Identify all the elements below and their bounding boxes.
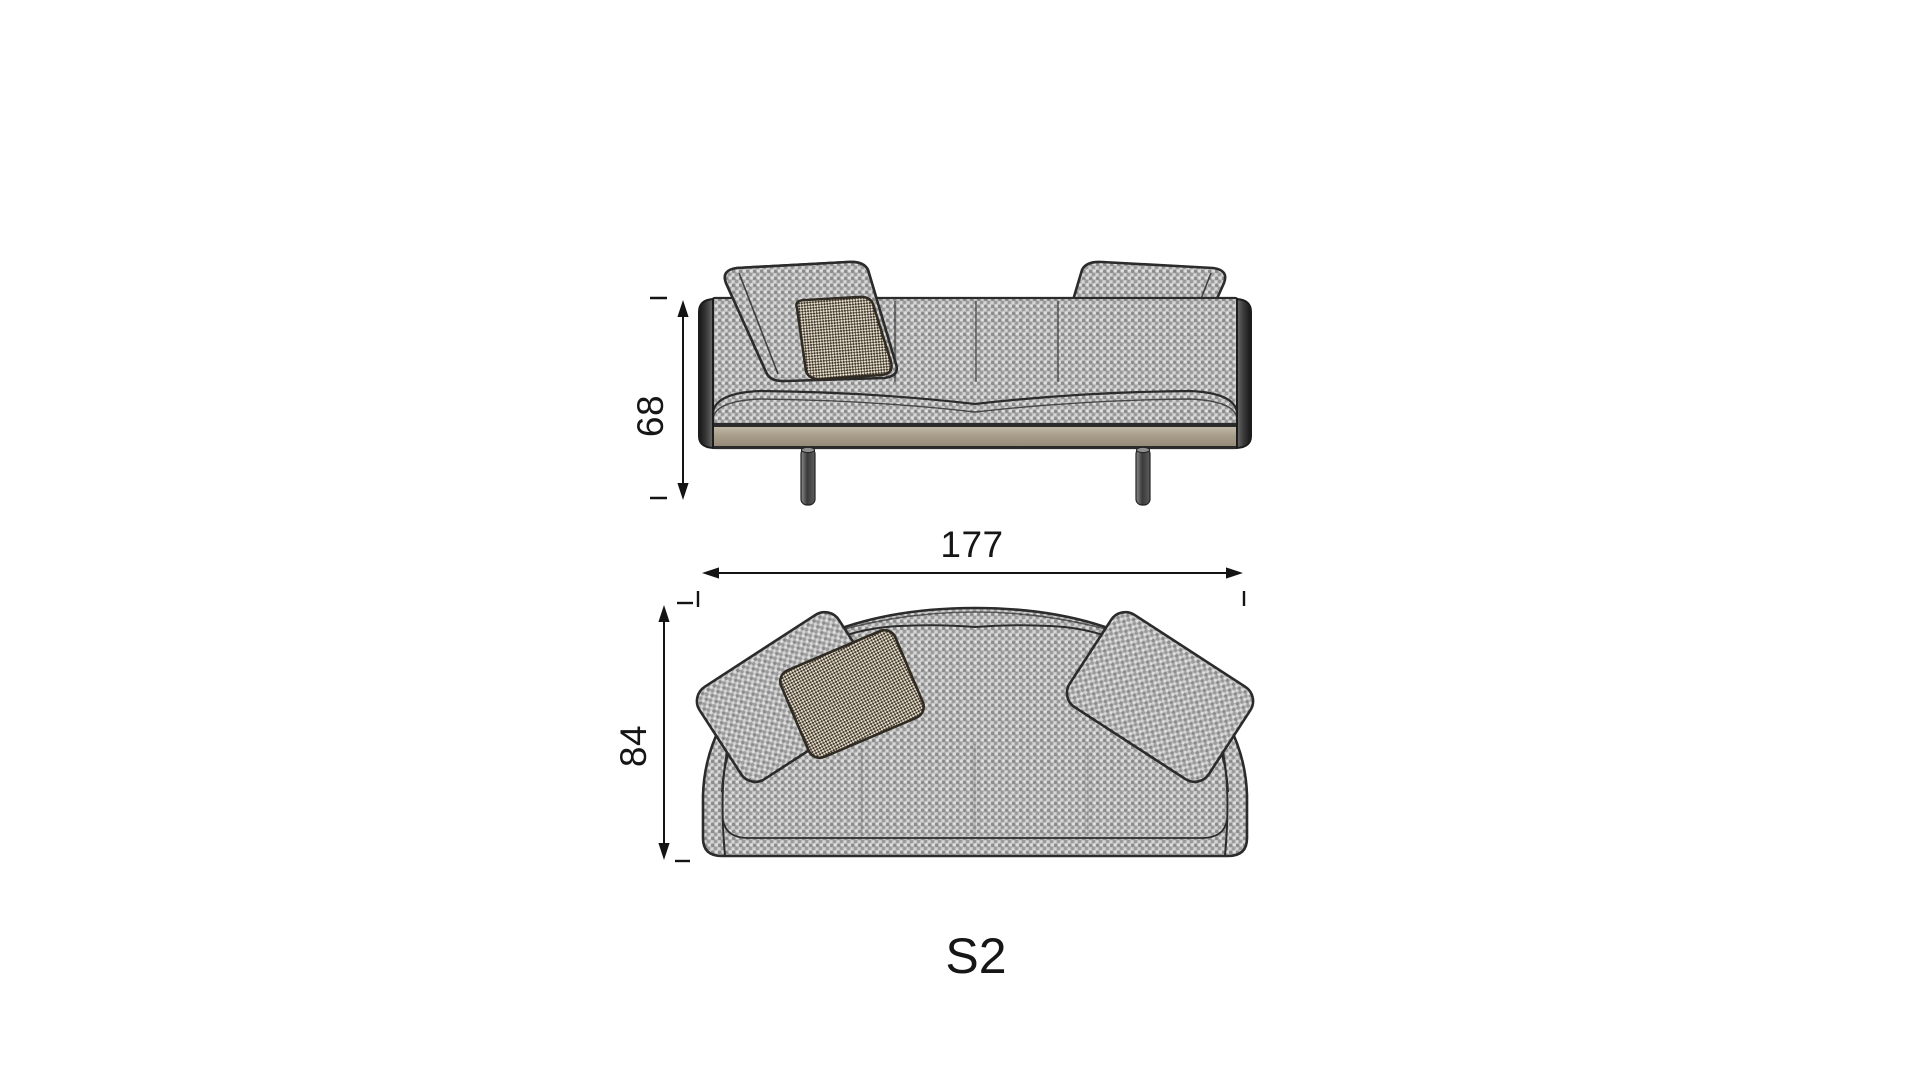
- width-dimension-arrow: [677, 567, 1244, 607]
- top-view: [690, 606, 1259, 856]
- width-dimension-label: 177: [912, 522, 1032, 568]
- leg-left: [801, 447, 815, 505]
- arm-edge-left: [699, 299, 713, 448]
- base-rail: [712, 426, 1238, 447]
- height-dimension-label: 68: [626, 366, 676, 466]
- arm-edge-right: [1237, 299, 1251, 448]
- depth-dimension-label: 84: [609, 696, 659, 796]
- depth-dimension-arrow: [658, 605, 690, 861]
- front-view: [699, 262, 1251, 505]
- leg-right: [1136, 447, 1150, 505]
- technical-drawing-page: 68 177 84 S2: [0, 0, 1920, 1080]
- product-model-label: S2: [916, 927, 1036, 985]
